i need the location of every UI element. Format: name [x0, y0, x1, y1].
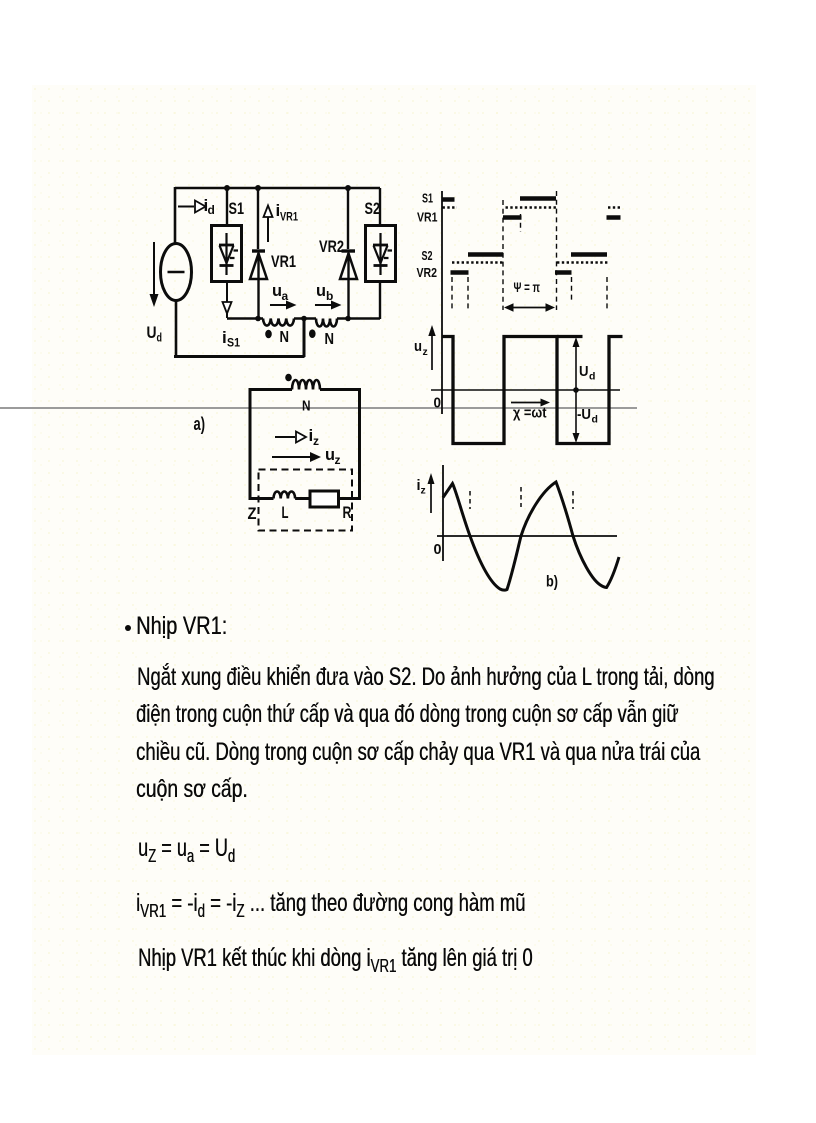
svg-text:N: N — [280, 329, 290, 346]
svg-text:VR1: VR1 — [280, 210, 298, 224]
svg-text:N: N — [302, 398, 311, 415]
svg-text:0: 0 — [434, 396, 442, 412]
svg-text:a): a) — [194, 414, 206, 434]
svg-text:d: d — [157, 331, 163, 345]
svg-text:S2: S2 — [365, 199, 381, 218]
svg-text:u: u — [414, 339, 422, 355]
svg-text:u: u — [316, 281, 326, 300]
svg-text:b): b) — [546, 574, 558, 591]
svg-text:z: z — [335, 453, 341, 467]
svg-text:VR2: VR2 — [417, 265, 438, 280]
svg-text:S2: S2 — [422, 248, 433, 263]
svg-text:VR1: VR1 — [417, 210, 438, 225]
svg-text:U: U — [579, 364, 589, 380]
svg-text:S1: S1 — [422, 191, 433, 206]
svg-text:u: u — [272, 281, 282, 300]
svg-text:χ =ωt: χ =ωt — [513, 406, 547, 422]
svg-text:a: a — [282, 289, 289, 303]
svg-text:Z: Z — [248, 504, 257, 523]
svg-text:b: b — [326, 289, 333, 303]
svg-text:Ψ = π: Ψ = π — [514, 279, 541, 295]
svg-text:U: U — [147, 323, 157, 342]
svg-text:d: d — [592, 414, 598, 426]
svg-text:d: d — [589, 371, 595, 383]
svg-text:z: z — [423, 346, 428, 358]
svg-text:u: u — [325, 445, 335, 464]
svg-text:VR2: VR2 — [319, 237, 344, 256]
svg-text:S1: S1 — [229, 199, 245, 218]
svg-text:-U: -U — [577, 407, 591, 423]
svg-text:d: d — [208, 203, 215, 217]
svg-text:N: N — [325, 331, 335, 348]
svg-text:R: R — [343, 503, 352, 522]
svg-text:z: z — [313, 434, 319, 448]
svg-text:S1: S1 — [227, 336, 240, 350]
svg-text:L: L — [282, 503, 289, 522]
svg-text:0: 0 — [434, 542, 442, 558]
svg-text:VR1: VR1 — [271, 252, 296, 271]
svg-text:z: z — [421, 485, 426, 497]
